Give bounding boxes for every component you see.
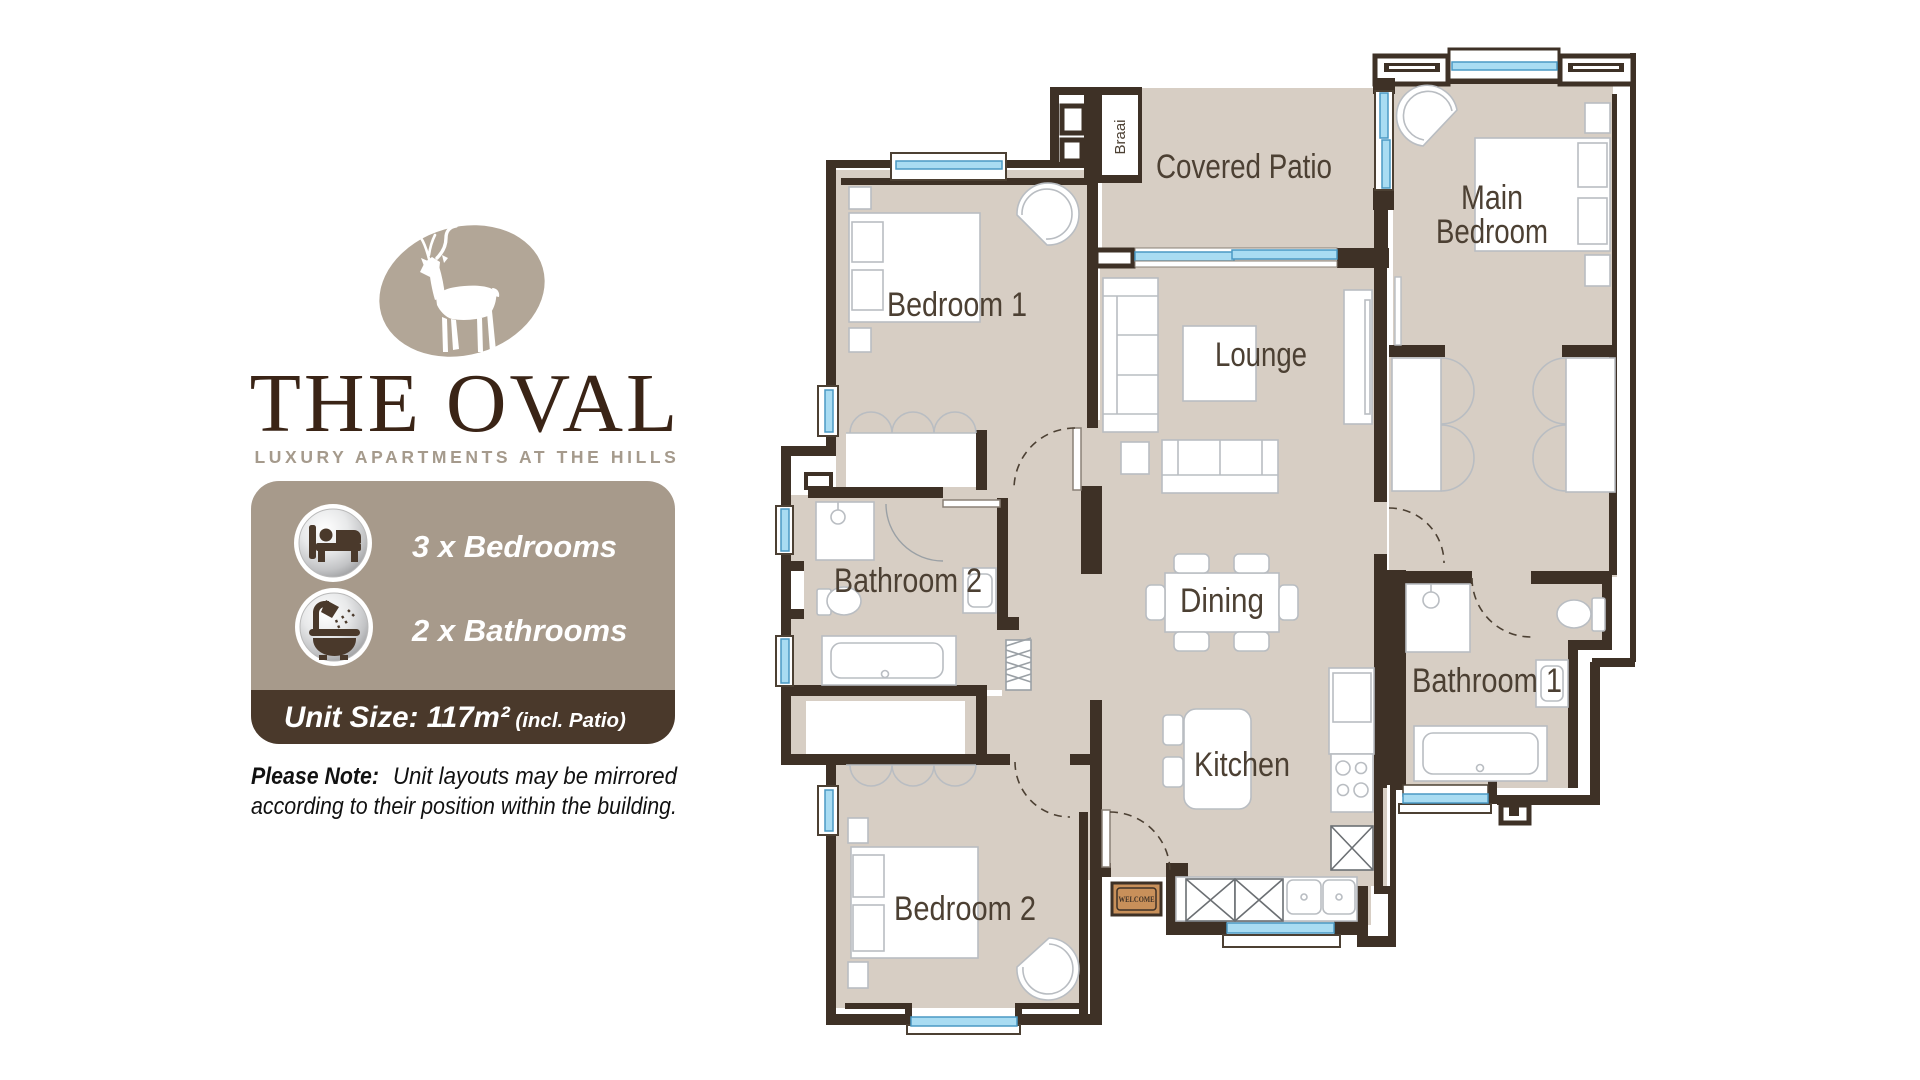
svg-text:Bathroom 1: Bathroom 1 xyxy=(1412,662,1562,700)
svg-text:Covered Patio: Covered Patio xyxy=(1156,148,1332,186)
svg-text:Bedroom 2: Bedroom 2 xyxy=(894,890,1036,928)
svg-text:Main: Main xyxy=(1461,179,1523,217)
svg-text:WELCOME: WELCOME xyxy=(1119,895,1155,904)
svg-text:Unit layouts may be mirrored: Unit layouts may be mirrored xyxy=(393,763,678,790)
svg-text:Braai: Braai xyxy=(1112,119,1129,154)
svg-text:Kitchen: Kitchen xyxy=(1194,746,1290,784)
svg-text:Bedroom: Bedroom xyxy=(1436,213,1548,251)
svg-text:Dining: Dining xyxy=(1180,582,1264,620)
svg-text:LUXURY APARTMENTS AT THE HILLS: LUXURY APARTMENTS AT THE HILLS xyxy=(255,447,680,467)
svg-text:3 x Bedrooms: 3 x Bedrooms xyxy=(412,529,617,564)
svg-text:Bathroom 2: Bathroom 2 xyxy=(834,562,982,600)
svg-text:Lounge: Lounge xyxy=(1215,336,1307,374)
svg-text:Please Note:: Please Note: xyxy=(251,763,379,790)
svg-text:according to their position wi: according to their position within the b… xyxy=(251,793,677,820)
svg-text:THE OVAL: THE OVAL xyxy=(250,357,681,450)
svg-text:2 x Bathrooms: 2 x Bathrooms xyxy=(411,613,627,648)
svg-text:Bedroom 1: Bedroom 1 xyxy=(887,286,1027,324)
